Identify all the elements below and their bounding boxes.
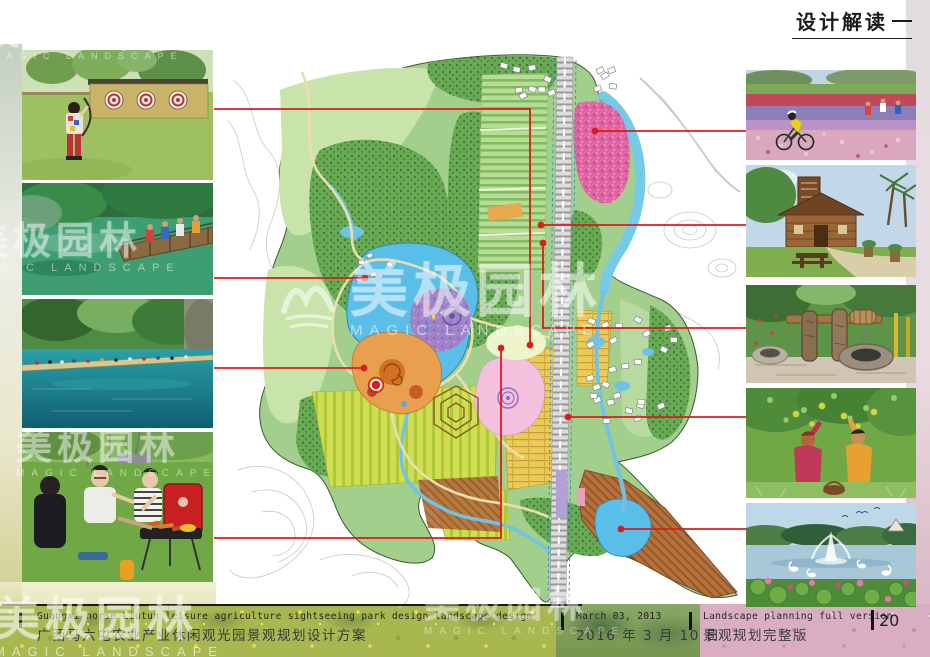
photo-fruit-picking (746, 388, 916, 498)
title-block: 设计解读 (700, 6, 912, 39)
version-en: Landscape planning full version (703, 611, 893, 622)
project-title-cn: 广西马六屯农业产业休闲观光园景观规划设计方案 (37, 624, 367, 644)
photo-flower-field-cycling (746, 70, 916, 160)
photo-swan-lake-fountain (746, 503, 916, 607)
footer-separator-bar (19, 612, 22, 628)
presentation-board: 美极园林 MAGIC LANDSCAPE 美极园林 MAGIC LANDSCAP… (0, 0, 930, 657)
date-cn: 2016 年 3 月 10 日 (576, 624, 721, 644)
footer-separator-bar (871, 610, 874, 630)
photo-bbq-picnic (22, 432, 213, 582)
footer-fade-band (0, 582, 216, 605)
left-border-photo-strip (0, 44, 22, 604)
photo-forest-boardwalk (22, 183, 213, 295)
photo-archery-range (22, 50, 213, 180)
footer-separator-bar (561, 612, 564, 630)
project-title-en: Guangxi horse Liutun leisure agriculture… (37, 611, 533, 622)
photo-wooden-cabin (746, 165, 916, 277)
title-dash-line (892, 20, 912, 22)
footer-rule-line (2, 604, 582, 606)
photo-old-water-well (746, 285, 916, 383)
title-underline (792, 38, 912, 39)
page-number: 20 (879, 611, 899, 630)
page-title: 设计解读 (796, 6, 888, 35)
photo-turquoise-lake (22, 299, 213, 428)
date-en: March 03, 2013 (576, 611, 662, 622)
footer-separator-bar (689, 612, 692, 630)
version-cn: 景观规划完整版 (703, 624, 808, 644)
